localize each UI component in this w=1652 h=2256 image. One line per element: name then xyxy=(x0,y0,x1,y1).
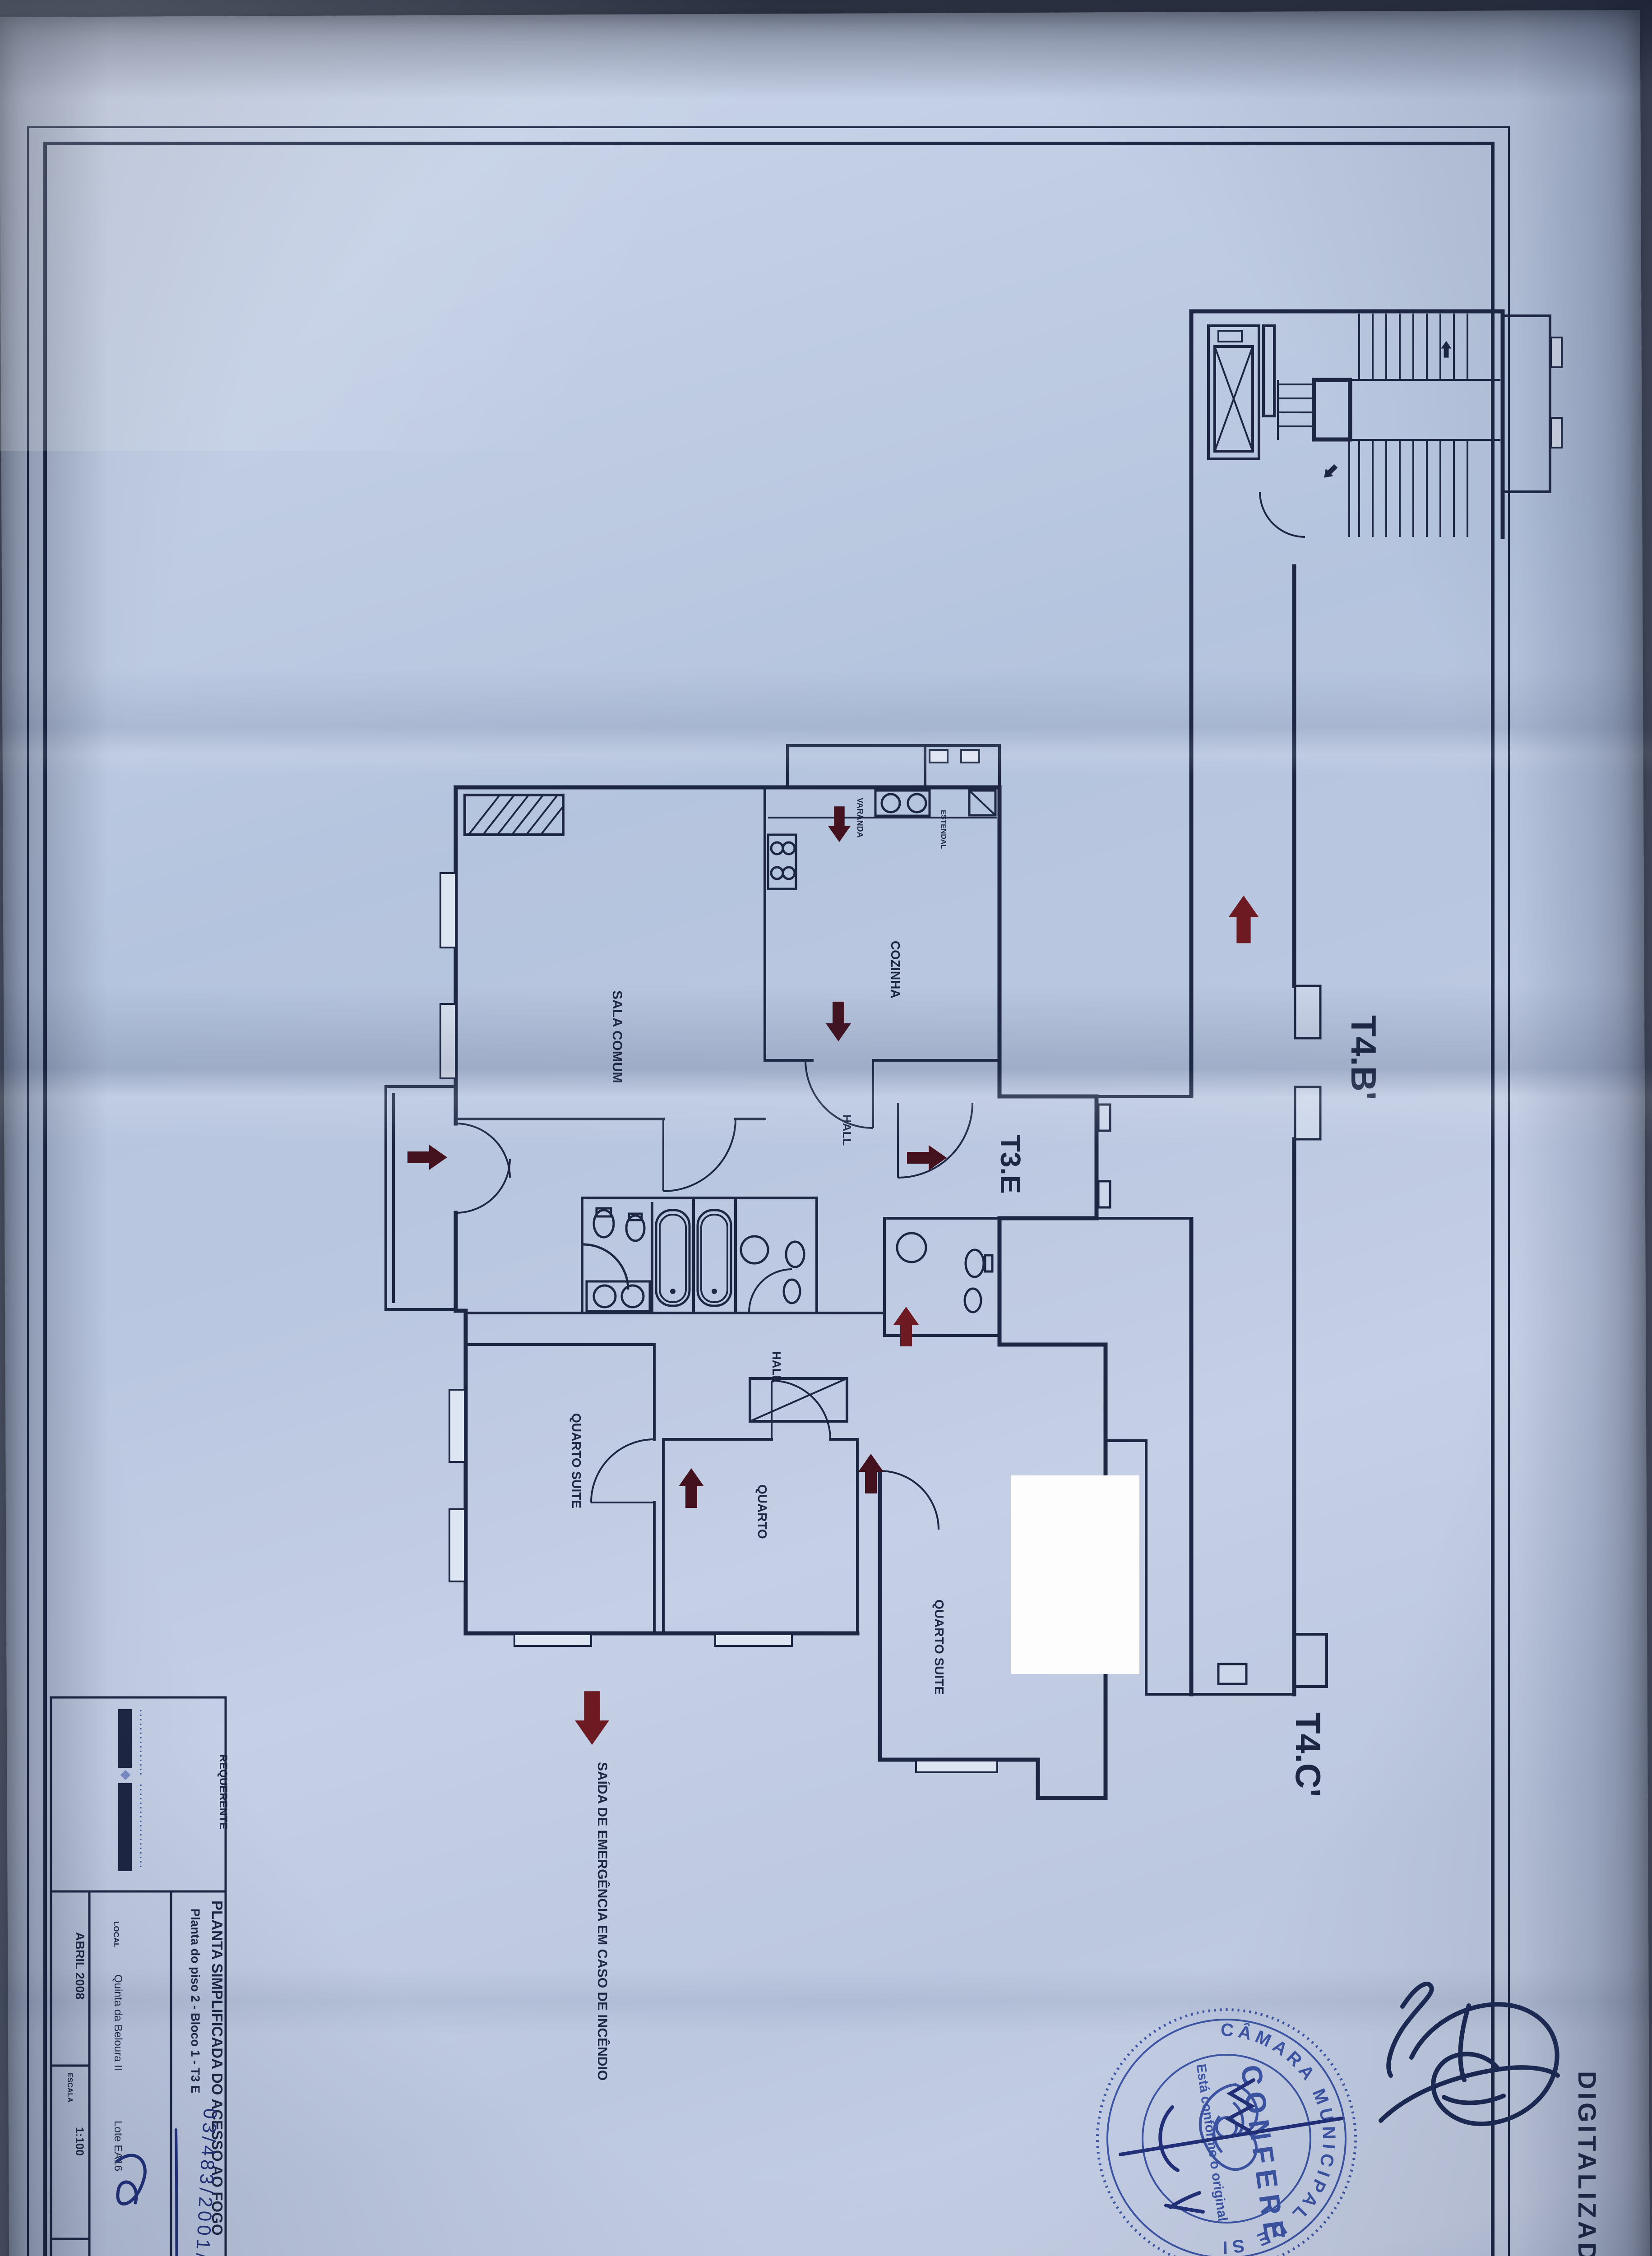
scale-label: ESCALA xyxy=(66,2073,74,2103)
scanned-photo: SALA COMUM COZINHA HALL HALL QUARTO SUIT… xyxy=(0,0,1652,2256)
local-label: LOCAL xyxy=(112,1921,120,1948)
floor-plan-drawing: SALA COMUM COZINHA HALL HALL QUARTO SUIT… xyxy=(0,0,1652,2256)
wardrobe xyxy=(750,1378,847,1421)
fixtures xyxy=(583,791,997,1312)
room-label-varanda: VARANDA xyxy=(856,798,865,838)
digitalizado-watermark: DIGITALIZADO xyxy=(1573,2071,1601,2256)
room-label-estendal: ESTENDAL xyxy=(939,810,947,849)
unit-label-t4b: T4.B' xyxy=(1344,1015,1384,1100)
room-label-quarto: QUARTO xyxy=(755,1484,769,1539)
escape-arrows xyxy=(407,806,1259,1508)
lote-value: Lote EA16 xyxy=(112,2121,124,2171)
requerente-label: REQUERENTE xyxy=(217,1754,229,1830)
room-label-sala: SALA COMUM xyxy=(610,990,625,1083)
emergency-exit-note: SAÍDA DE EMERGÊNCIA EM CASO DE INCÊNDIO xyxy=(575,1691,610,2080)
date-value: ABRIL 2008 xyxy=(73,1932,87,2000)
stair-core xyxy=(1191,311,1562,566)
requerente-box xyxy=(51,1697,226,1891)
stair-treads xyxy=(1278,314,1500,537)
logo-mark xyxy=(118,1709,132,1768)
whiteout-patch xyxy=(1011,1475,1139,1674)
room-label-quarto-suite-bottom: QUARTO SUITE xyxy=(932,1600,946,1695)
scale-value: 1:100 xyxy=(73,2127,86,2156)
emergency-exit-text: SAÍDA DE EMERGÊNCIA EM CASO DE INCÊNDIO xyxy=(595,1762,610,2080)
local-value: Quinta da Beloura II xyxy=(112,1974,124,2071)
unit-label-t4c: T4.C' xyxy=(1288,1712,1328,1797)
entry-door xyxy=(898,1103,972,1178)
balcony-planter xyxy=(465,795,563,835)
unit-label-t3e: T3.E xyxy=(995,1135,1026,1194)
logo-mark xyxy=(118,1783,132,1871)
title-block: REQUERENTE PLANTA SIMPLIFICADA DO ACESSO… xyxy=(51,1697,229,2256)
handwritten-annotations: 03/483/2001/FT 21 xyxy=(117,2108,221,2256)
room-label-cozinha: COZINHA xyxy=(888,941,902,999)
room-label-quarto-suite-left: QUARTO SUITE xyxy=(569,1413,583,1508)
stair-landing xyxy=(1314,380,1350,439)
door-leaf xyxy=(1295,986,1320,1038)
municipal-stamp: CÂMARA MUNICIPAL DE SINTRA CONFERE Está … xyxy=(1097,2010,1356,2256)
drawing-frame xyxy=(28,127,1509,2256)
interior-walls xyxy=(456,787,1000,1633)
balcony-double-door xyxy=(456,1123,510,1213)
room-labels: SALA COMUM COZINHA HALL HALL QUARTO SUIT… xyxy=(569,798,1384,1797)
room-label-hall1: HALL xyxy=(840,1114,854,1146)
plan-subtitle: Planta do piso 2 - Bloco 1 - T3 E xyxy=(189,1909,202,2094)
door-leaf xyxy=(1295,1087,1320,1139)
room-label-hall2: HALL xyxy=(770,1351,783,1382)
signature xyxy=(1381,1984,1558,2124)
